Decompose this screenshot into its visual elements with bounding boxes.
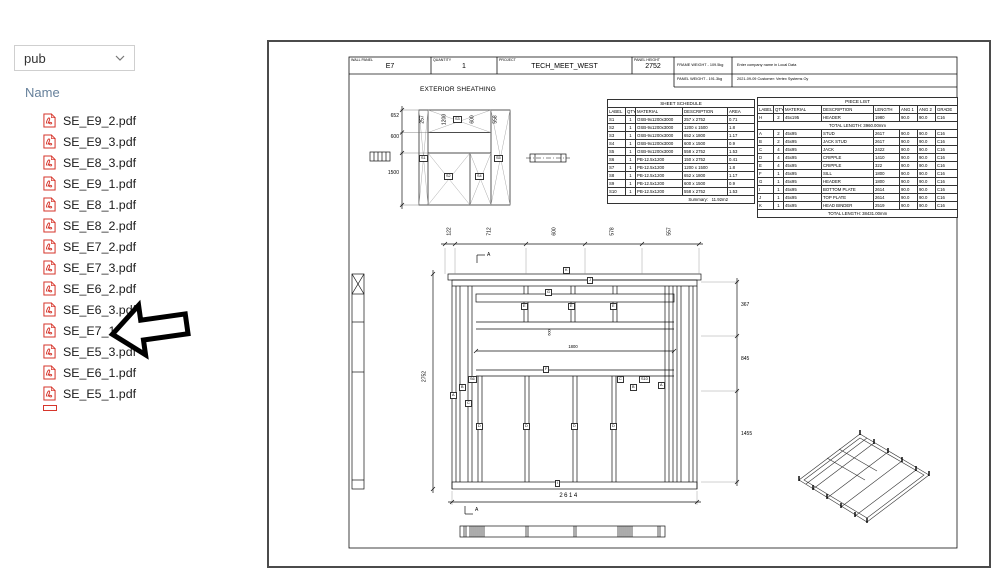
quantity-label: QUANTITY (433, 58, 451, 62)
sheet-schedule-row: S41OSB-9x1200x3000600 x 15000.9 (608, 140, 755, 148)
piece-tag: D (610, 423, 617, 430)
sheet-schedule-row: S51OSB-9x1200x3000558 x 27521.53 (608, 148, 755, 156)
panel-weight: PANEL WEIGHT - 191.3kg (677, 77, 722, 81)
pdf-file-icon (43, 134, 56, 149)
piece-list-row: I145x95BOTTOM PLATE 261490.090.0C16 (758, 186, 958, 194)
file-name: SE_E5_1.pdf (63, 387, 136, 401)
file-item[interactable]: SE_E8_1.pdf (40, 194, 260, 215)
screen: { "colors": { "pdf_icon": "#d6352b", "ar… (0, 0, 1007, 575)
project-label: PROJECT (499, 58, 516, 62)
sheet-tag: S2 (444, 173, 453, 180)
file-name: SE_E9_2.pdf (63, 114, 136, 128)
piece-list-row: A245x95STUD 261790.090.0C16 (758, 130, 958, 138)
file-name: SE_E8_3.pdf (63, 156, 136, 170)
file-name: SE_E6_2.pdf (63, 282, 136, 296)
piece-list-total: TOTAL LENGTH: 38431.00mm (758, 210, 958, 218)
pdf-viewer: WALL PANEL E7 QUANTITY 1 PROJECT TECH_ME… (267, 40, 991, 568)
dimension-label: 1500 (371, 171, 399, 176)
piece-list-row: G145x95HEADER 180090.090.0C16 (758, 178, 958, 186)
dimension-label: 367 (741, 303, 749, 308)
pdf-file-icon (43, 302, 56, 317)
chevron-down-icon (115, 55, 125, 61)
panel-height-label: PANEL HEIGHT (634, 58, 660, 62)
piece-list-row: B245x95JACK STUD 261790.090.0C16 (758, 138, 958, 146)
piece-tag: E (568, 303, 575, 310)
piece-tag: B (459, 384, 466, 391)
dimension-label: 1455 (741, 432, 752, 437)
piece-list-row: E445x95CRIPPLE 32290.090.0C16 (758, 162, 958, 170)
file-name: SE_E9_3.pdf (63, 135, 136, 149)
piece-list-row: H245x195HEADER 198090.090.0C16 (758, 114, 958, 122)
file-name: SE_E8_1.pdf (63, 198, 136, 212)
sheet-tag: S3 (453, 116, 462, 123)
dimension-label: 1200 (443, 108, 448, 132)
file-item[interactable]: SE_E9_3.pdf (40, 131, 260, 152)
arrow-annotation (108, 296, 194, 368)
piece-list-row: C445x95JACK 242290.090.0C16 (758, 146, 958, 154)
side-view-strip (352, 274, 364, 489)
pdf-file-icon (43, 281, 56, 296)
folder-dropdown-value: pub (24, 51, 46, 66)
dimension-label: 845 (741, 357, 749, 362)
dimension-label: 2752 (423, 363, 428, 391)
wall-panel-value: E7 (349, 63, 431, 71)
piece-tag: F (543, 366, 549, 373)
piece-tag: E (610, 303, 617, 310)
dimension-label: 652 (371, 114, 399, 119)
company-line1: Enter company name in Local Data (737, 63, 796, 67)
file-item[interactable]: SE_E7_2.pdf (40, 236, 260, 257)
sheet-schedule-header-row: LABEL QTY MATERIAL DESCRIPTION AREA (608, 108, 755, 116)
sheet-schedule-row: S101PB-12.5x1200558 x 27521.53 (608, 188, 755, 196)
sheet-schedule-row: S21OSB-9x1200x30001200 x 15001.8 (608, 124, 755, 132)
folder-dropdown[interactable]: pub (14, 45, 135, 71)
piece-tag: I (555, 480, 560, 487)
dimension-label: 558 (494, 108, 499, 132)
file-item[interactable]: SE_E7_3.pdf (40, 257, 260, 278)
file-name: SE_E9_1.pdf (63, 177, 136, 191)
sheet-schedule-row: S71PB-12.5x12001200 x 15001.8 (608, 164, 755, 172)
dimension-label: 712 (488, 220, 493, 244)
piece-tag: B (630, 384, 637, 391)
company-line2: 2021-09-09 Customer: Vertex Systems Oy (737, 77, 808, 81)
sheet-tag: S4 (475, 173, 484, 180)
isometric-view (799, 434, 929, 522)
wall-panel-label: WALL PANEL (351, 58, 373, 62)
pdf-file-icon (43, 218, 56, 233)
dimension-label: 600 (548, 321, 553, 345)
pdf-file-icon (43, 365, 56, 380)
pdf-file-icon (43, 155, 56, 170)
piece-tag: D (523, 423, 530, 430)
sheet-schedule-row: S81PB-12.5x1200652 x 18001.17 (608, 172, 755, 180)
piece-list-row: K145x95HEAD BINDER 251990.090.0C16 (758, 202, 958, 210)
piece-tag: C (465, 400, 472, 407)
sheathing-title: EXTERIOR SHEATHING (398, 86, 518, 93)
left-arrow-shape (109, 299, 190, 359)
dimension-label: 600 (371, 135, 399, 140)
piece-list-row: J145x95TOP PLATE 261490.090.0C16 (758, 194, 958, 202)
piece-tag: S10 (639, 376, 650, 383)
dimension-label: 1800 (553, 344, 593, 349)
file-name: SE_E7_3.pdf (63, 261, 136, 275)
file-item[interactable]: SE_E8_2.pdf (40, 215, 260, 236)
dimension-label: 122 (448, 220, 453, 244)
pdf-file-icon (43, 344, 56, 359)
partial-pdf-file-icon (43, 405, 57, 411)
file-item[interactable]: SE_E8_3.pdf (40, 152, 260, 173)
piece-tag: A (658, 382, 665, 389)
quantity-value: 1 (431, 63, 497, 71)
sheet-schedule-summary: Summary: 11.92m2 (608, 196, 755, 204)
dimension-label: 600 (553, 220, 558, 244)
file-name: SE_E8_2.pdf (63, 219, 136, 233)
sheet-schedule-row: S61PB-12.5x1200150 x 27520.41 (608, 156, 755, 164)
piece-tag: A (450, 392, 457, 399)
pdf-file-icon (43, 239, 56, 254)
file-item[interactable]: SE_E5_1.pdf (40, 383, 260, 404)
frame-weight: FRAME WEIGHT - 109.5kg (677, 63, 723, 67)
piece-tag: S6 (468, 376, 477, 383)
pdf-file-icon (43, 113, 56, 128)
section-mark-a-bottom: A (475, 508, 478, 513)
piece-tag: D (571, 423, 578, 430)
dimension-label: 257 (421, 108, 426, 132)
right-section-icon (526, 154, 570, 162)
sheet-tag: S5 (494, 155, 503, 162)
pdf-file-icon (43, 386, 56, 401)
isometric-stud-ticks (799, 430, 929, 523)
dimension-label: 578 (611, 220, 616, 244)
dimension-label: 600 (471, 108, 476, 132)
piece-list-title: PIECE LIST (758, 98, 958, 106)
panel-height-value: 2752 (632, 63, 674, 71)
column-header-name[interactable]: Name (25, 85, 60, 100)
dimension-label: 2614 (539, 494, 599, 499)
section-mark-a-top: A (487, 253, 490, 258)
file-name: SE_E7_2.pdf (63, 240, 136, 254)
left-section-icon (370, 152, 390, 161)
pdf-file-icon (43, 260, 56, 275)
piece-tag: K (563, 267, 570, 274)
dimension-label: 557 (668, 220, 673, 244)
sheet-schedule-row: S31OSB-9x1200x3000652 x 18001.17 (608, 132, 755, 140)
file-item[interactable]: SE_E9_2.pdf (40, 110, 260, 131)
sheet-schedule-title: SHEET SCHEDULE (608, 100, 755, 108)
piece-tag: D (476, 423, 483, 430)
piece-tag: E (521, 303, 528, 310)
sheet-schedule-table: SHEET SCHEDULE LABEL QTY MATERIAL DESCRI… (607, 99, 755, 204)
pdf-file-icon (43, 323, 56, 338)
piece-tag: C (617, 376, 624, 383)
pdf-file-icon (43, 197, 56, 212)
piece-list-table: PIECE LIST LABELQTY MATERIALDESCRIPTION … (757, 97, 958, 218)
piece-tag: G (545, 289, 552, 296)
plan-strip (460, 526, 665, 537)
piece-list-subtotal: TOTAL LENGTH: 3960.00mm (758, 122, 958, 130)
piece-list-header-row: LABELQTY MATERIALDESCRIPTION LENGTHANG 1… (758, 106, 958, 114)
pdf-file-icon (43, 176, 56, 191)
file-browser-panel: pub Name SE_E9_2.pdf SE_E9_3.pdf (0, 0, 267, 575)
sheet-schedule-row: S11OSB-9x1200x3000257 x 27520.71 (608, 116, 755, 124)
piece-list-row: F145x95SILL 180090.090.0C16 (758, 170, 958, 178)
sheet-schedule-row: S91PB-12.5x1200600 x 15000.9 (608, 180, 755, 188)
project-value: TECH_MEET_WEST (497, 63, 632, 71)
piece-tag: J (587, 277, 593, 284)
file-item[interactable]: SE_E9_1.pdf (40, 173, 260, 194)
sheet-tag: S1 (419, 155, 428, 162)
piece-list-row: D445x95CRIPPLE 141090.090.0C16 (758, 154, 958, 162)
